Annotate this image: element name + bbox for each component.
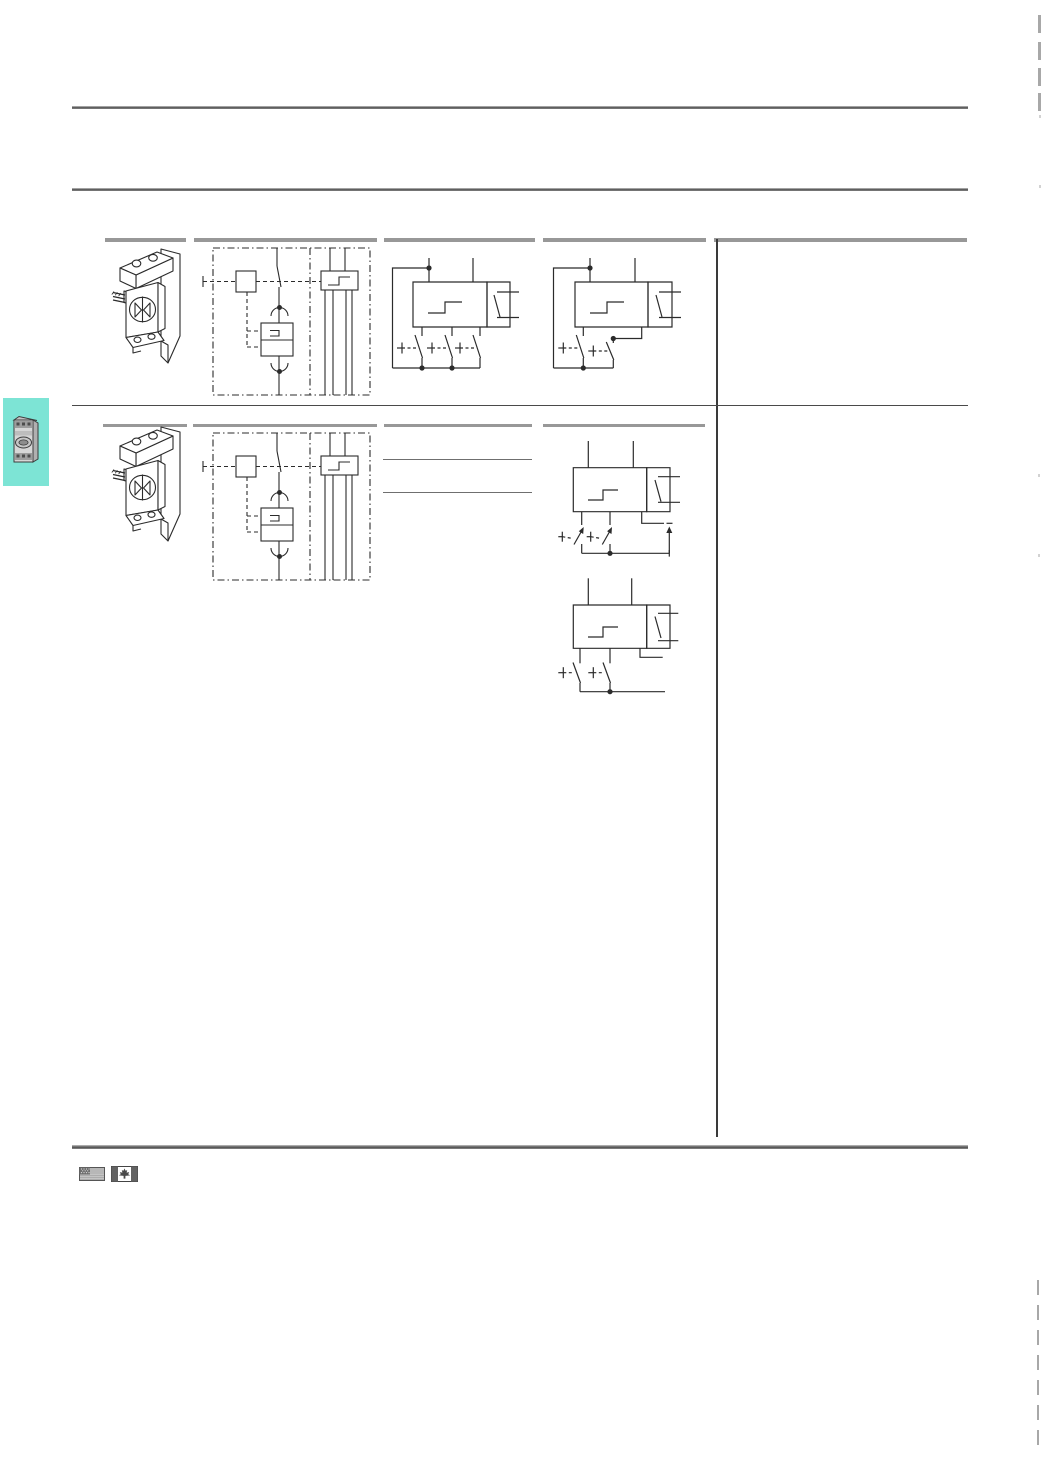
crop-mark [1038,68,1041,86]
early-make-contacts-dc-diagram [556,438,682,558]
us-flag-icon [79,1167,105,1181]
row-separator [72,405,968,407]
internal-wiring-schematic-row1 [200,246,372,398]
section-tab [3,398,49,486]
catalog-page [0,0,1041,1471]
crop-mark [1038,93,1041,111]
release-two-contacts-diagram-b [556,575,682,695]
release-three-contacts-diagram [390,255,522,371]
blank-row-line-1 [383,459,532,460]
blank-row-line-2 [383,492,532,493]
crop-mark [1037,1280,1039,1295]
crop-mark [1037,1355,1039,1370]
horizontal-rule-second [72,188,968,191]
canada-flag-icon [111,1166,138,1182]
table-header-bar-row2-col3 [384,424,532,427]
table-header-bar-row2-col2 [193,424,377,427]
product-isometric-drawing-row1 [106,244,190,366]
horizontal-rule-bottom [72,1145,968,1149]
horizontal-rule-top [72,106,968,109]
approvals-flags [79,1166,139,1184]
crop-mark [1037,1330,1039,1345]
table-header-bar-col2 [194,238,377,242]
crop-dot [1038,474,1040,477]
table-header-bar-col5 [714,238,967,242]
release-two-contacts-diagram [551,255,683,371]
crop-dot [1038,554,1040,557]
crop-mark [1038,15,1041,33]
crop-mark [1037,1380,1039,1395]
table-header-bar-col3 [384,238,535,242]
motor-protective-circuit-breaker-photo-icon [11,413,41,465]
table-header-bar-col1 [105,238,186,242]
crop-mark [1037,1430,1039,1445]
product-isometric-drawing-row2 [106,420,190,546]
table-header-bar-col4 [543,238,706,242]
crop-mark [1037,1305,1039,1320]
crop-mark [1038,42,1041,60]
table-header-bar-row2-col4 [543,424,705,427]
column-divider [716,239,718,1137]
crop-mark [1037,1405,1039,1420]
internal-wiring-schematic-row2 [200,431,372,583]
